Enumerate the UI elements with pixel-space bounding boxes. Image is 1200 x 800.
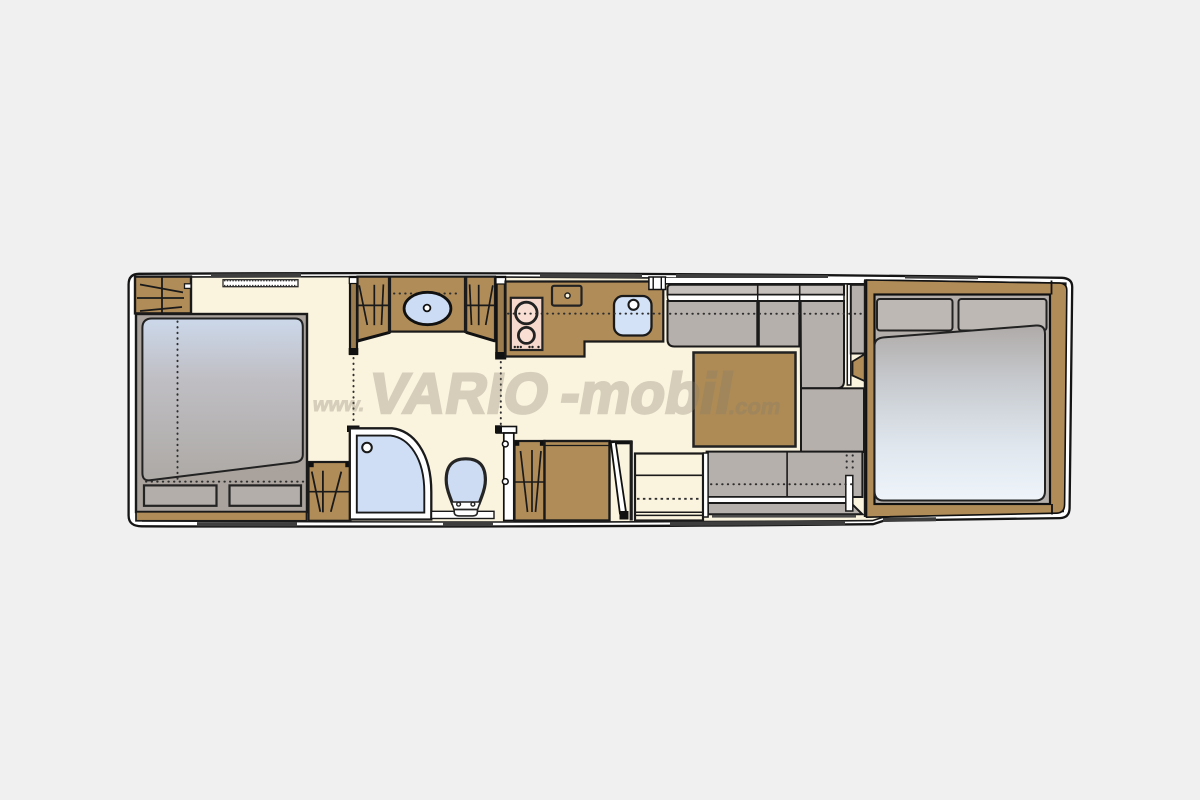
svg-text:-mobil: -mobil bbox=[556, 362, 738, 426]
svg-text:.com: .com bbox=[727, 394, 783, 419]
svg-text:VARIO: VARIO bbox=[365, 362, 555, 426]
svg-text:www.: www. bbox=[310, 394, 366, 416]
